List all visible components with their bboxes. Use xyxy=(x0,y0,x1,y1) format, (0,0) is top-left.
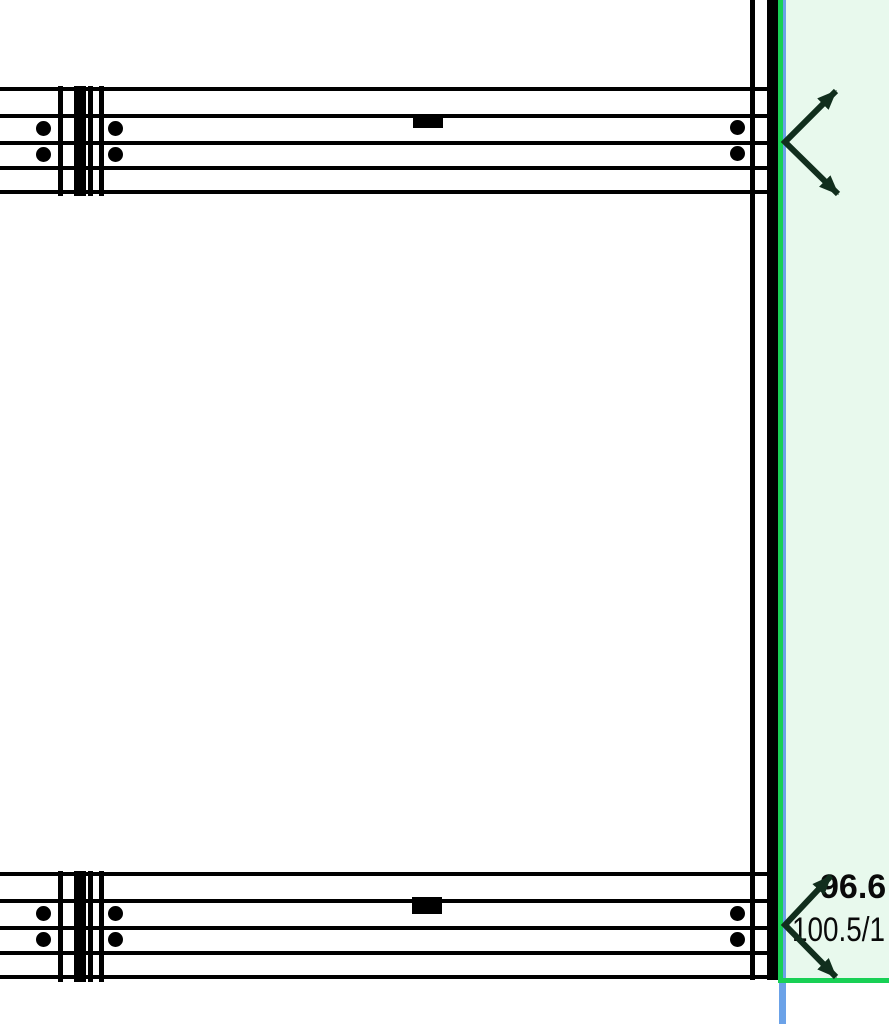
bottom-beam-bolt xyxy=(108,906,123,921)
top-beam-line-5 xyxy=(0,190,770,194)
bottom-beam-line-4 xyxy=(0,951,770,955)
bottom-beam-bolt xyxy=(36,932,51,947)
wall-post-thick-right xyxy=(767,0,778,980)
grid-line-green-vertical xyxy=(778,0,783,980)
dimension-label-secondary: 100.5/1 xyxy=(792,913,885,947)
top-splice-post xyxy=(74,86,86,196)
top-beam-bolt xyxy=(108,147,123,162)
bottom-beam-bolt xyxy=(730,932,745,947)
bottom-splice-line-a xyxy=(58,871,63,982)
bottom-splice-line-b xyxy=(88,871,93,982)
top-beam-plate xyxy=(413,114,443,128)
cad-viewport[interactable]: 96.6 100.5/1 xyxy=(0,0,889,1024)
top-beam-bolt xyxy=(36,121,51,136)
annotation-arrows-layer xyxy=(0,0,889,1024)
top-beam-bolt xyxy=(730,146,745,161)
bottom-splice-post xyxy=(74,871,86,982)
bottom-beam-line-3 xyxy=(0,926,770,930)
bottom-beam-plate xyxy=(412,897,442,914)
top-beam-line-4 xyxy=(0,166,770,170)
bottom-splice-line-c xyxy=(99,871,104,982)
highlight-panel xyxy=(786,0,889,978)
top-beam-bolt xyxy=(36,147,51,162)
top-splice-line-b xyxy=(88,86,93,196)
grid-line-green-horizontal xyxy=(778,978,889,983)
top-splice-line-c xyxy=(99,86,104,196)
top-beam-line-1 xyxy=(0,87,770,91)
bottom-beam-line-5 xyxy=(0,975,770,979)
top-beam-bolt xyxy=(108,121,123,136)
bottom-beam-bolt xyxy=(36,906,51,921)
bottom-beam-bolt xyxy=(730,906,745,921)
bottom-beam-bolt xyxy=(108,932,123,947)
dimension-label-primary: 96.6 xyxy=(820,870,886,904)
wall-line-thin-right xyxy=(750,0,755,980)
top-beam-line-3 xyxy=(0,141,770,145)
top-beam-bolt xyxy=(730,120,745,135)
bottom-beam-line-1 xyxy=(0,872,770,876)
top-splice-line-a xyxy=(58,86,63,196)
bottom-beam-line-2 xyxy=(0,899,770,903)
top-beam-line-2 xyxy=(0,114,770,118)
